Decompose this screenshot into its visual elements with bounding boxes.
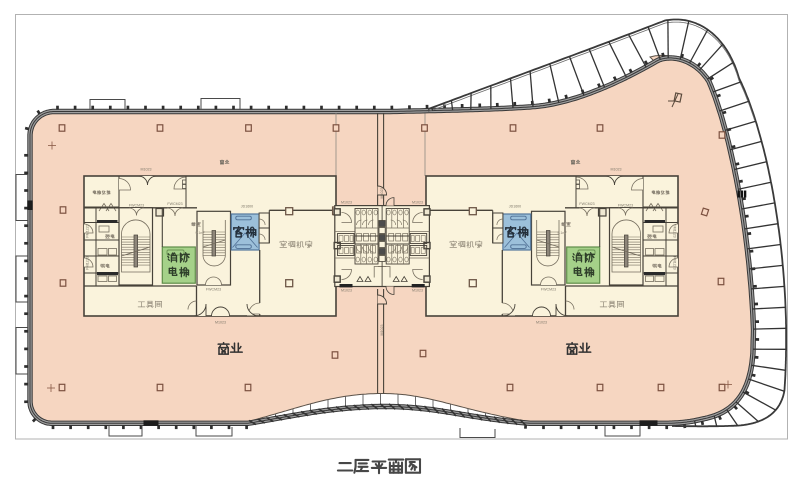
svg-text:M1023: M1023 [380, 188, 384, 199]
svg-text:FWCM23: FWCM23 [579, 202, 594, 206]
svg-text:M1023: M1023 [141, 168, 152, 172]
svg-text:FWCM23: FWCM23 [167, 202, 182, 206]
svg-text:FM1223: FM1223 [673, 224, 677, 237]
svg-text:M1023: M1023 [341, 288, 352, 292]
svg-text:FM1223: FM1223 [86, 224, 90, 237]
svg-text:FWCM23: FWCM23 [618, 203, 633, 207]
svg-text:JD1600: JD1600 [509, 204, 521, 208]
svg-text:9.1m²: 9.1m² [195, 231, 205, 235]
svg-text:M1023: M1023 [412, 288, 423, 292]
svg-text:FWCM23: FWCM23 [129, 203, 144, 207]
svg-text:FM1223: FM1223 [673, 256, 677, 269]
svg-text:M1023: M1023 [341, 200, 352, 204]
svg-text:FWCM23: FWCM23 [206, 288, 221, 292]
svg-text:9.1m²: 9.1m² [557, 231, 567, 235]
svg-text:FM1223: FM1223 [86, 256, 90, 269]
svg-text:M1023: M1023 [611, 168, 622, 172]
svg-text:M1023: M1023 [380, 325, 384, 336]
svg-text:JD1600: JD1600 [241, 204, 253, 208]
svg-text:M1023: M1023 [536, 321, 547, 325]
svg-text:M1023: M1023 [215, 321, 226, 325]
svg-text:FWCM23: FWCM23 [541, 288, 556, 292]
svg-text:M1023: M1023 [412, 200, 423, 204]
